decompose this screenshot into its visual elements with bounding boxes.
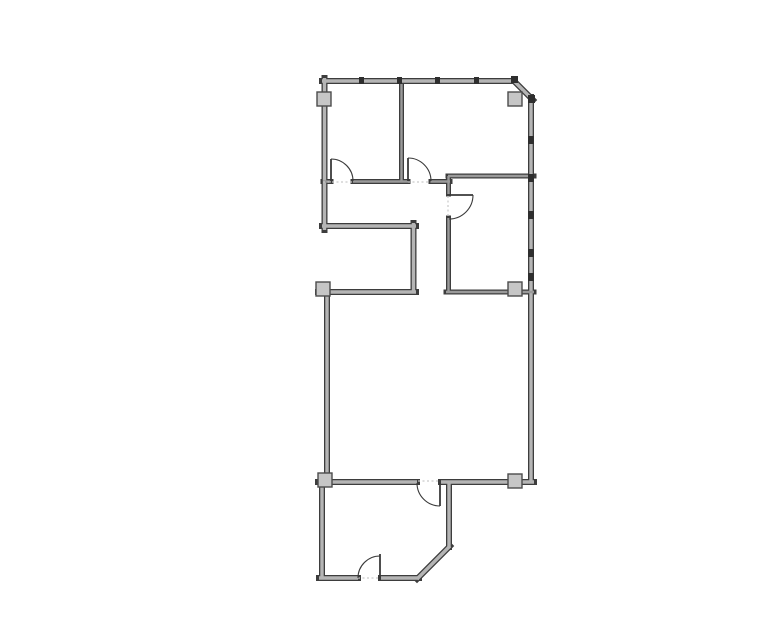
column-top-left xyxy=(317,92,331,106)
detail-layer xyxy=(316,76,535,578)
mullion-top-2 xyxy=(397,77,402,84)
door-right-room xyxy=(449,195,473,219)
column-mid-right xyxy=(508,282,522,296)
mullion-right-3 xyxy=(528,211,534,219)
door-swing-arc xyxy=(331,159,353,181)
door-swing-arc xyxy=(417,483,440,506)
door-swing-arc xyxy=(449,195,473,219)
mullion-right-4 xyxy=(528,249,534,257)
mullion-top-4 xyxy=(474,77,479,84)
mullion-right-2 xyxy=(528,174,534,182)
wall-core-layer xyxy=(318,78,534,579)
door-swing-arc xyxy=(358,556,380,578)
mullion-right-1 xyxy=(528,136,534,144)
column-bottom-right xyxy=(508,474,522,488)
door-bottom-room-exit xyxy=(358,554,380,578)
floor-plan-drawing xyxy=(0,0,777,633)
floor-plan-page xyxy=(0,0,777,633)
mullion-right-5 xyxy=(528,273,534,281)
mullion-top-3 xyxy=(435,77,440,84)
mullion-chamfer-top xyxy=(511,76,518,83)
column-top-right xyxy=(508,92,522,106)
mullion-top-1 xyxy=(359,77,364,84)
wall-outline-layer xyxy=(318,78,534,579)
wall-core-bottom-room-diagonal xyxy=(417,546,450,579)
column-bottom-left xyxy=(318,473,332,487)
door-swing-arc xyxy=(408,158,431,181)
door-middle-to-bottom xyxy=(417,483,440,506)
door-top-middle-room xyxy=(408,158,431,181)
door-top-left-room xyxy=(331,159,353,181)
column-mid-left xyxy=(316,282,330,296)
mullion-chamfer-bottom xyxy=(528,95,535,103)
